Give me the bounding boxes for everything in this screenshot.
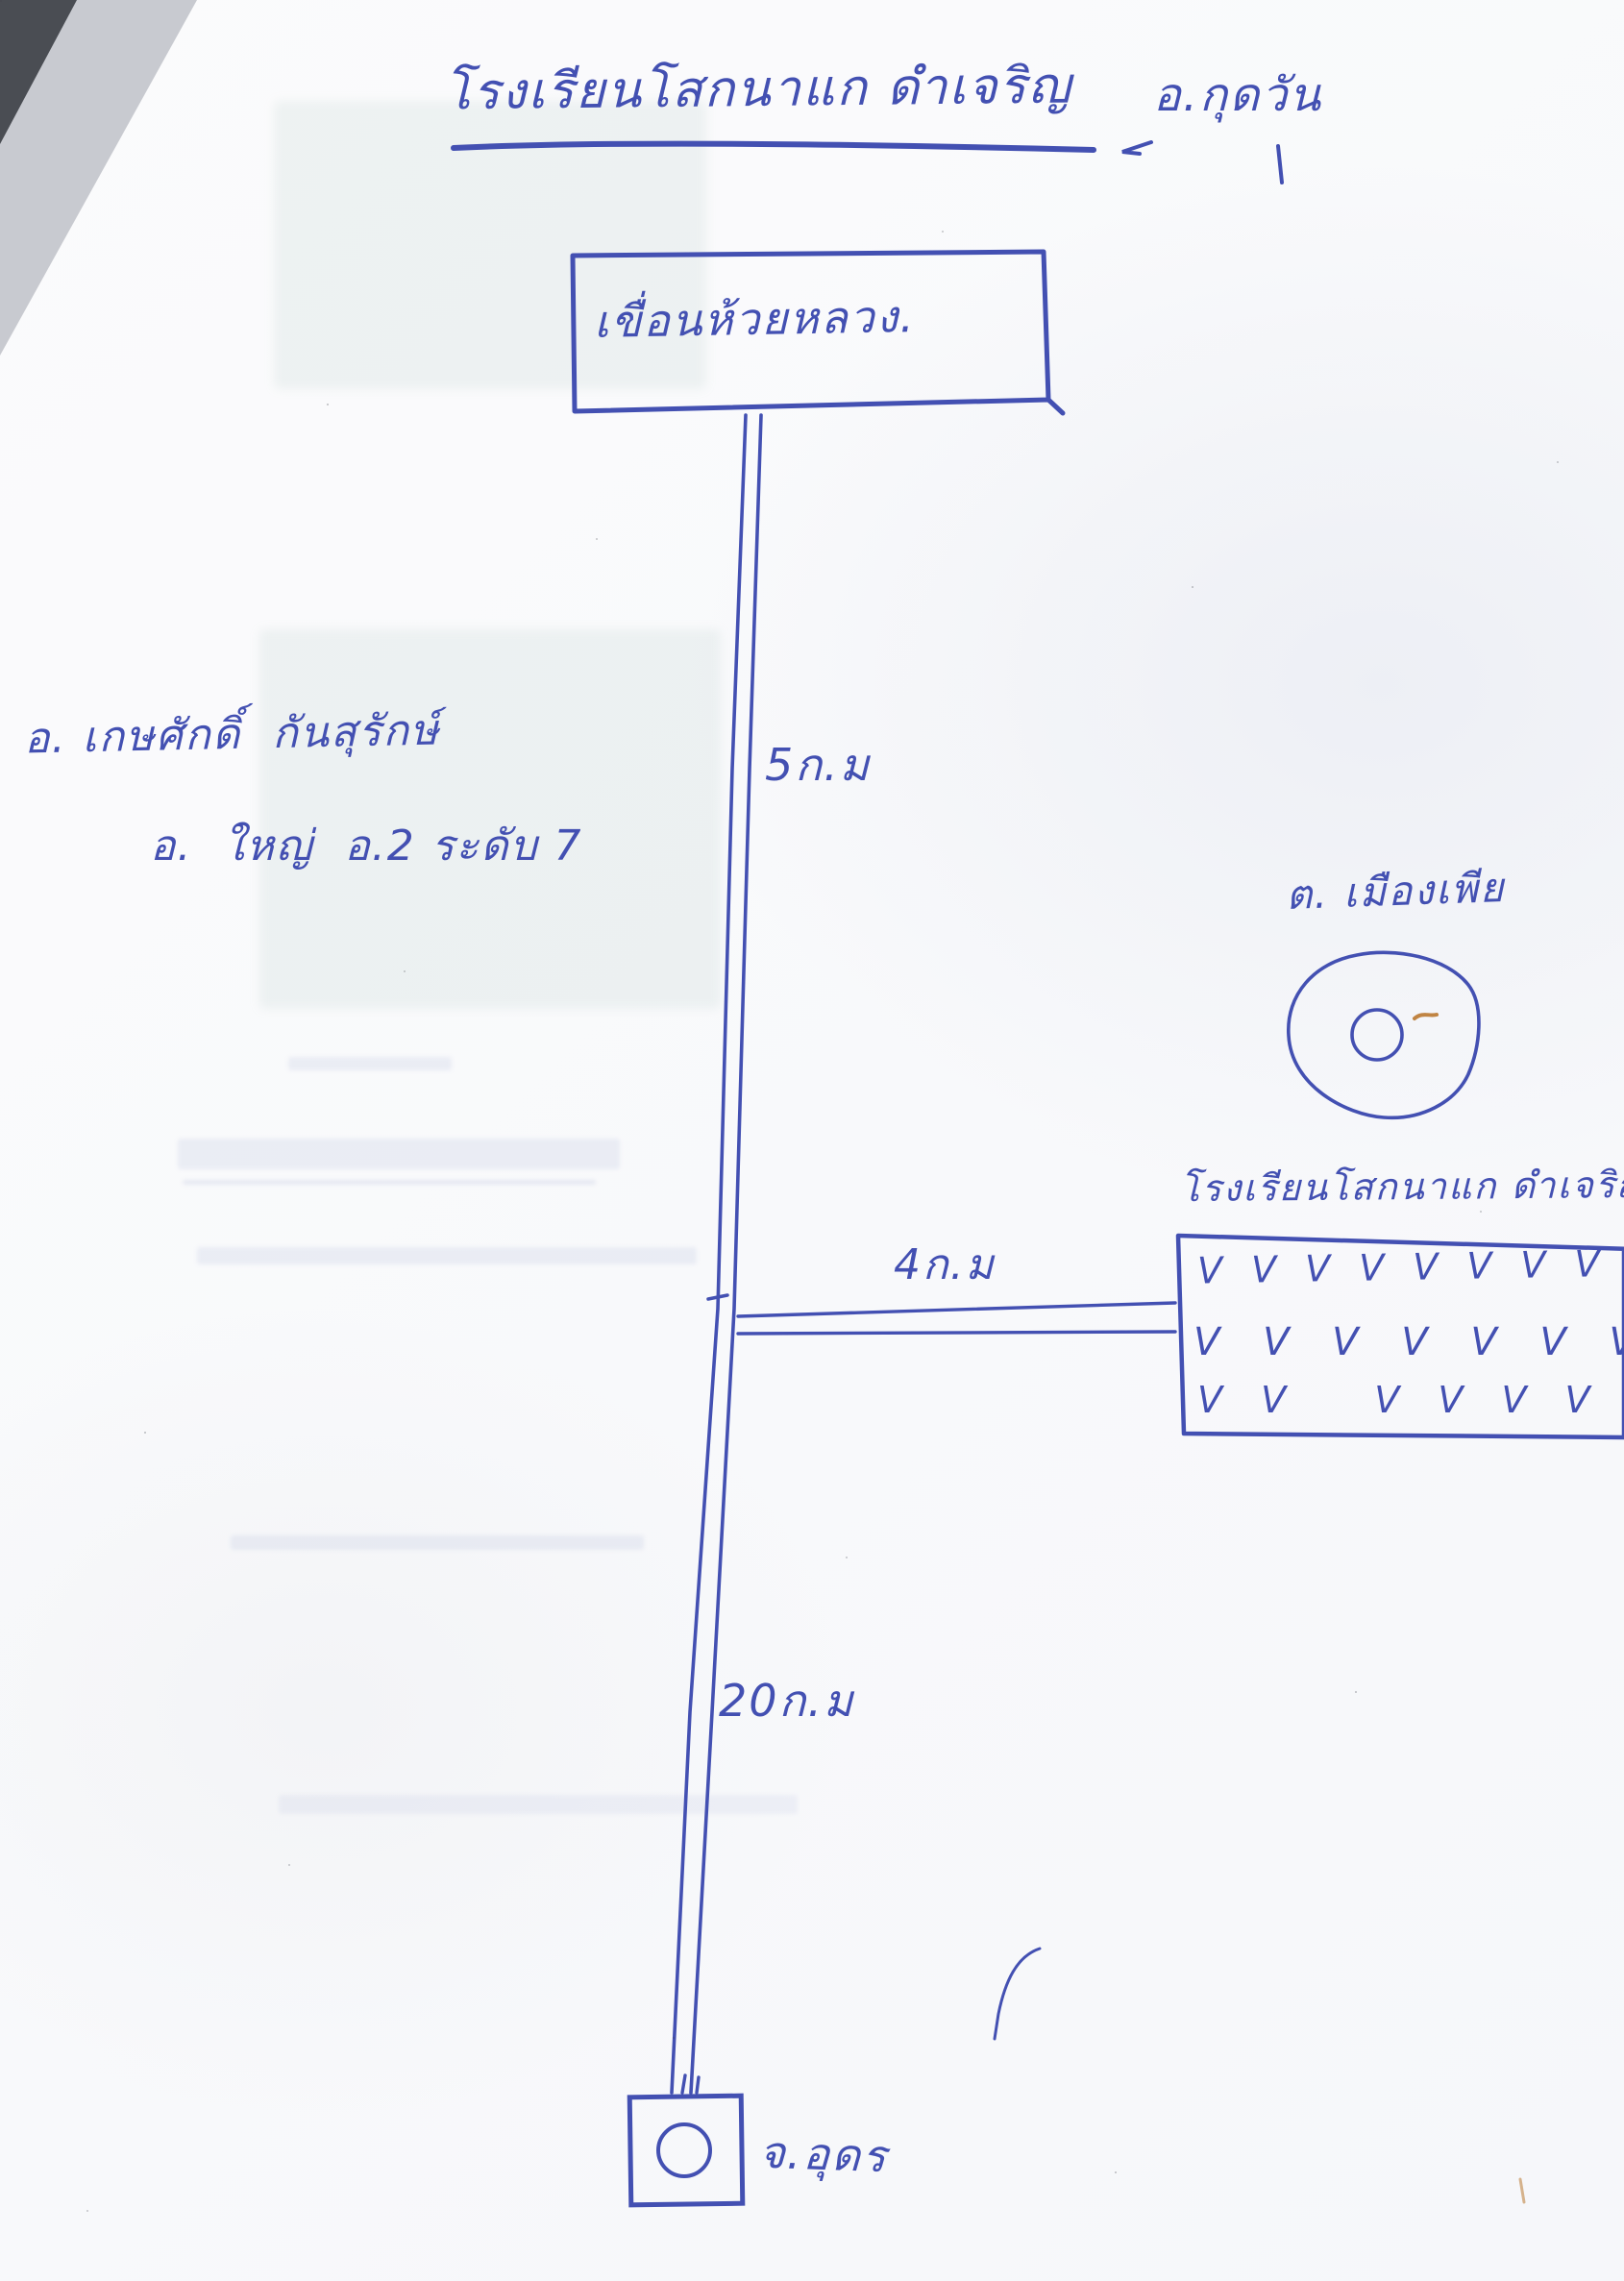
village-inner-circle xyxy=(1352,1010,1402,1060)
bottom-right-mark xyxy=(1520,2179,1524,2202)
paper-specks xyxy=(0,0,2,2)
school-field-row-2: V V V V V V V V V V V V xyxy=(1193,1322,1624,1362)
orange-scribble-mark xyxy=(1415,1015,1437,1018)
main-road-right-line xyxy=(691,415,761,2093)
distance-label-branch: 4ก.ม xyxy=(894,1243,996,1288)
village-blob-outline xyxy=(1289,952,1479,1117)
teacher-note-line2: อ. ใหญ่ อ.2 ระดับ 7 xyxy=(150,824,582,869)
scanned-paper-map: โรงเรียนโสกนาแก ดำเจริญ อ.กุดวัน เขื่อนห… xyxy=(0,0,1624,2281)
district-tick-mark xyxy=(1278,146,1282,183)
branch-road-bottom-line xyxy=(738,1332,1175,1334)
school-label: โรงเรียนโสกนาแก ดำเจริญ xyxy=(1180,1166,1624,1209)
teacher-note-line1: อ. เกษศักดิ์ กันสุรักษ์ xyxy=(24,708,441,761)
road-junction-tick xyxy=(708,1295,727,1299)
stray-pen-curve xyxy=(995,1949,1040,2039)
distance-label-top: 5ก.ม xyxy=(765,742,871,788)
page-title: โรงเรียนโสกนาแก ดำเจริญ xyxy=(444,61,1072,119)
province-label: จ.อุดร xyxy=(758,2129,888,2180)
province-circle xyxy=(658,2124,710,2176)
page-title-district: อ.กุดวัน xyxy=(1153,71,1322,119)
province-square xyxy=(629,2096,743,2205)
school-field-row-3: V V V V V V V V V V V xyxy=(1197,1382,1624,1420)
village-label: ต. เมืองเพีย xyxy=(1285,867,1506,917)
dam-box-label: เขื่อนห้วยหลวง. xyxy=(594,293,917,345)
distance-label-bottom: 20ก.ม xyxy=(719,1678,854,1724)
branch-road-top-line xyxy=(738,1303,1175,1316)
title-underline-arrow xyxy=(1122,142,1151,154)
title-underline xyxy=(454,144,1094,150)
